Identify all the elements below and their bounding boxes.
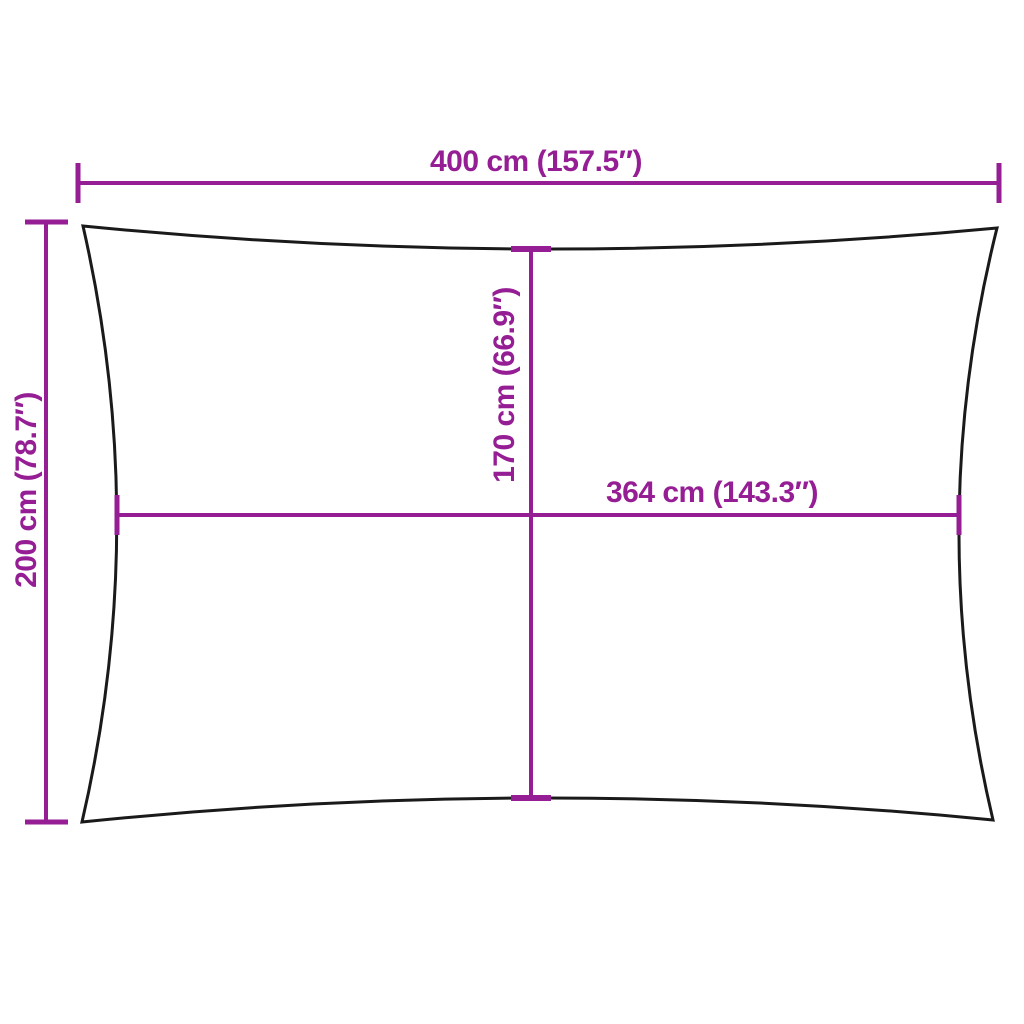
width-dimension-label: 400 cm (157.5″)	[430, 145, 642, 178]
center-width-dimension-label: 364 cm (143.3″)	[606, 476, 818, 509]
center-height-dimension-label: 170 cm (66.9″)	[488, 287, 521, 483]
product-dimension-diagram: 400 cm (157.5″) 200 cm (78.7″) 170 cm (6…	[0, 0, 1024, 1024]
dimension-diagram-canvas: 400 cm (157.5″) 200 cm (78.7″) 170 cm (6…	[0, 0, 1024, 1024]
height-dimension-label: 200 cm (78.7″)	[10, 392, 43, 588]
